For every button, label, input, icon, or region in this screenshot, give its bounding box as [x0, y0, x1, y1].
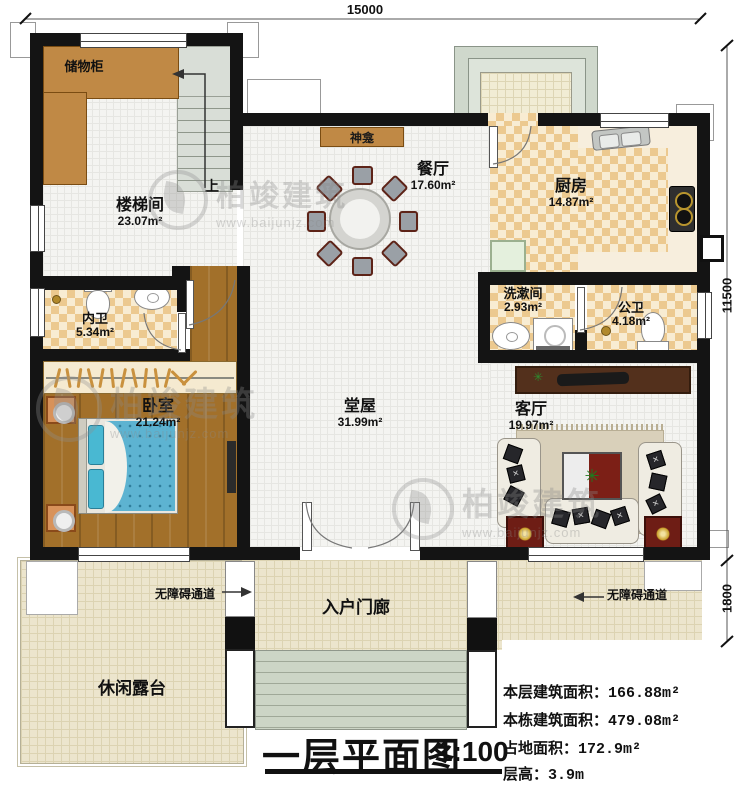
washing-machine: [533, 318, 573, 353]
kitchen-door-opening: [488, 113, 538, 126]
wall: [478, 272, 710, 285]
stat-total-area: 本栋建筑面积：479.08m²: [503, 709, 680, 730]
bedroom-door: [186, 280, 194, 329]
stat-story-height: 层高：3.9m: [503, 763, 584, 784]
room-label-bedroom: 卧室: [142, 398, 174, 416]
stairs-up-label: 上: [205, 176, 219, 196]
stove: [669, 186, 695, 232]
entry-door-right: [410, 502, 420, 551]
wall: [420, 547, 528, 560]
entry-door-left: [302, 502, 312, 551]
plant-icon: ✳: [533, 370, 543, 384]
porch-column-left-base: [225, 561, 255, 617]
window: [78, 547, 190, 562]
wardrobe: [43, 361, 237, 394]
wall: [697, 126, 710, 292]
sofa-cushion: [649, 473, 668, 492]
dining-chair: [352, 166, 373, 185]
rear-porch-mat: [480, 72, 572, 114]
wall: [30, 547, 78, 560]
floor-drain: [52, 295, 61, 304]
coffee-table: ✳: [562, 452, 622, 500]
refrigerator: [490, 240, 526, 272]
wall: [697, 337, 710, 560]
entry-steps: [255, 650, 467, 730]
bed: [78, 418, 178, 514]
stat-footprint: 占地面积：172.9m²: [503, 737, 641, 758]
dining-table-top: [340, 199, 380, 239]
bedroom-door-opening: [190, 266, 237, 280]
room-label-living: 客厅: [515, 401, 547, 419]
wall: [478, 350, 710, 363]
wall: [230, 33, 243, 190]
room-label-terrace: 休闲露台: [98, 674, 166, 699]
wall: [237, 113, 490, 126]
room-label-public-bath: 公卫: [618, 301, 644, 315]
room-label-ensuite: 内卫: [82, 312, 108, 326]
storage-cabinet-left: [43, 92, 87, 185]
tv-cabinet: ✳: [515, 366, 691, 394]
public-bath-door: [577, 287, 585, 333]
porch-column-left-lower: [225, 649, 255, 728]
kitchen-door: [489, 126, 498, 168]
flue-box: [700, 235, 724, 262]
room-label-storage: 储物柜: [64, 60, 103, 74]
pillow: [88, 425, 104, 465]
sofa-cushion: ✕: [572, 507, 591, 526]
eave-slab-left: [26, 561, 78, 615]
pillow: [88, 469, 104, 509]
window: [697, 292, 712, 339]
window: [528, 547, 644, 562]
plant-icon: ✳: [584, 466, 599, 487]
wall: [30, 276, 190, 290]
room-label-dining: 餐厅: [417, 161, 449, 179]
wall: [538, 113, 600, 126]
nightstand: [46, 396, 76, 424]
floor-drain: [601, 326, 611, 336]
washroom-sink: [492, 322, 530, 350]
porch-column-right-lower: [467, 650, 497, 728]
floor-plan: 神龛: [0, 0, 750, 798]
room-label-stairwell: 楼梯间: [116, 197, 164, 215]
stat-floor-area: 本层建筑面积：166.88m²: [503, 681, 680, 702]
porch-column-right-base: [467, 561, 497, 618]
window: [30, 205, 45, 252]
ensuite-door: [178, 313, 186, 353]
room-label-hall: 堂屋: [344, 398, 376, 416]
dining-chair: [399, 211, 418, 232]
window: [80, 33, 187, 48]
room-label-porch: 入户门廊: [322, 593, 390, 618]
ramp-label-right: 无障碍通道: [607, 586, 667, 603]
ramp-label-left: 无障碍通道: [155, 585, 215, 602]
wall: [30, 33, 43, 205]
window: [30, 288, 45, 337]
living-tv: [557, 372, 629, 387]
wall: [188, 547, 300, 560]
wall: [30, 349, 190, 361]
room-label-washroom: 洗漱间: [503, 287, 542, 301]
bedroom-corridor-floor: [190, 280, 237, 361]
dining-chair: [352, 257, 373, 276]
dim-right-lower: 1800: [720, 574, 735, 624]
window: [600, 113, 669, 128]
plan-scale: 1:100: [437, 736, 509, 768]
dim-top: 15000: [335, 2, 395, 17]
wall: [642, 547, 710, 560]
dim-right: 11500: [720, 266, 735, 326]
title-underline: [265, 769, 502, 774]
shrine-label: 神龛: [350, 129, 374, 146]
wall: [30, 335, 43, 560]
bedroom-tv: [227, 441, 236, 493]
nightstand: [46, 504, 76, 532]
stair-landing: [177, 46, 233, 98]
wall: [237, 266, 250, 547]
porch-column-right: [467, 618, 497, 650]
dining-chair: [307, 211, 326, 232]
wall: [667, 113, 710, 126]
eave-box: [247, 79, 321, 116]
room-label-kitchen: 厨房: [555, 178, 587, 196]
porch-column-left: [225, 617, 255, 649]
